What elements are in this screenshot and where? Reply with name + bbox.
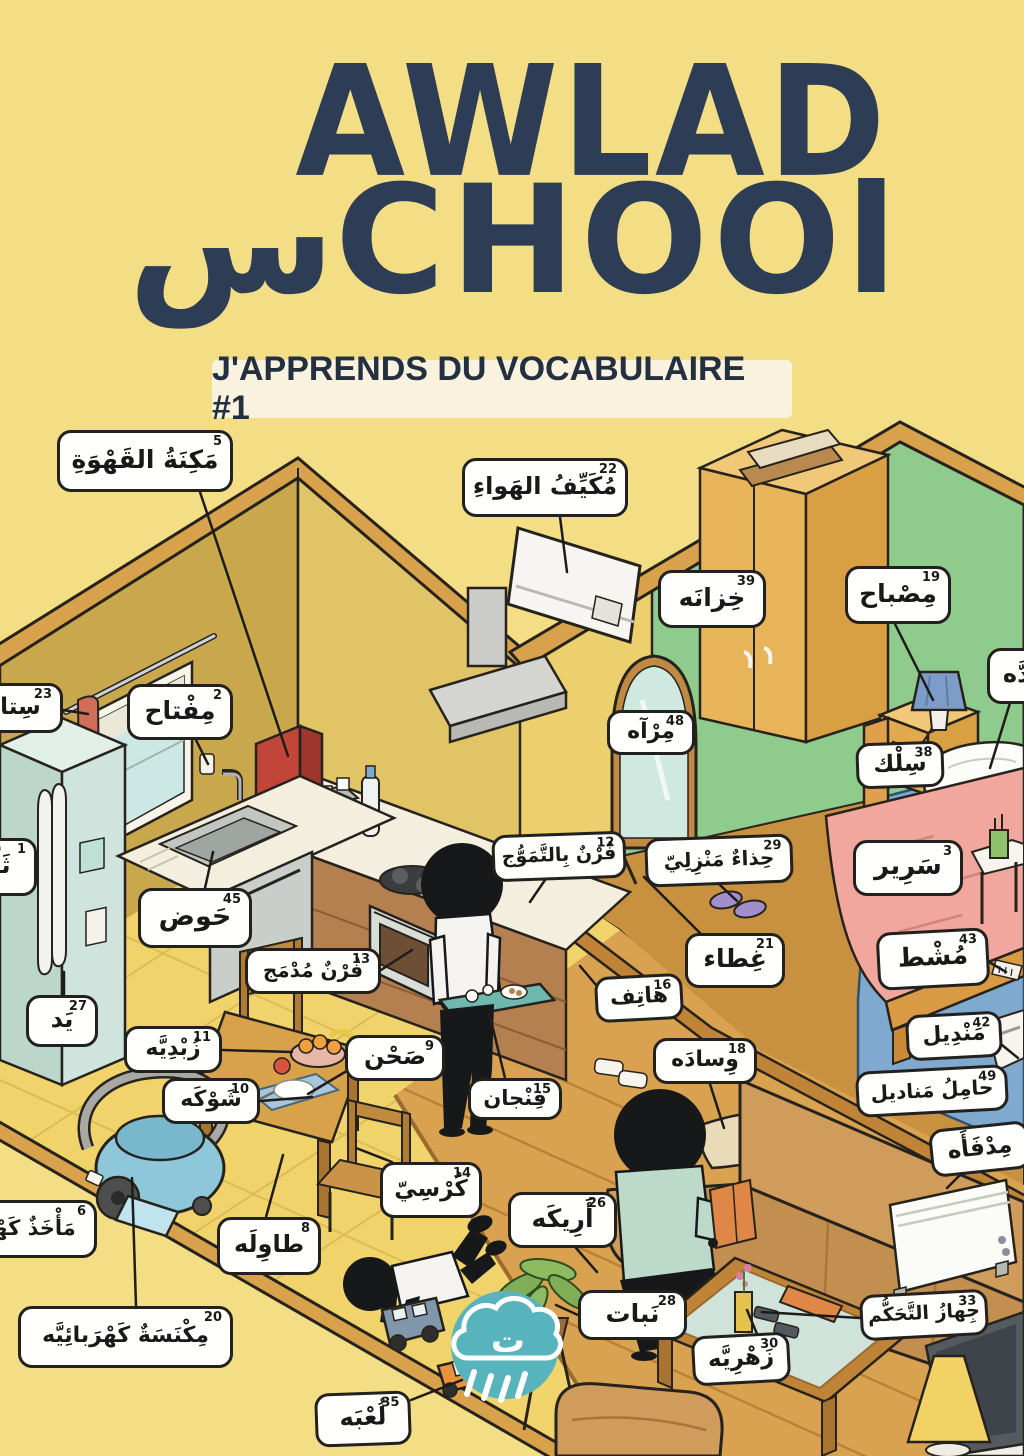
mug bbox=[337, 778, 349, 790]
apple bbox=[274, 1058, 290, 1074]
vase bbox=[735, 1292, 752, 1332]
fridge-handle bbox=[38, 790, 52, 974]
pencil-cup bbox=[990, 830, 1008, 858]
bedside-lamp bbox=[912, 672, 966, 710]
fridge-panel bbox=[80, 838, 104, 873]
logo-letter: ت bbox=[491, 1321, 525, 1361]
wardrobe bbox=[700, 430, 888, 742]
cup-on-tray bbox=[466, 990, 478, 1002]
subtitle-text: J'APPRENDS DU VOCABULAIRE #1 bbox=[212, 350, 792, 428]
armchair bbox=[556, 1384, 722, 1456]
air-conditioner bbox=[508, 528, 640, 642]
book-cover: ت AWLAD سCHOOl J'APPRENDS DU VOCABULAIRE… bbox=[0, 0, 1024, 1456]
title-school: سCHOOl bbox=[128, 166, 902, 316]
fridge bbox=[0, 718, 125, 1085]
subtitle-banner: J'APPRENDS DU VOCABULAIRE #1 bbox=[212, 360, 792, 418]
